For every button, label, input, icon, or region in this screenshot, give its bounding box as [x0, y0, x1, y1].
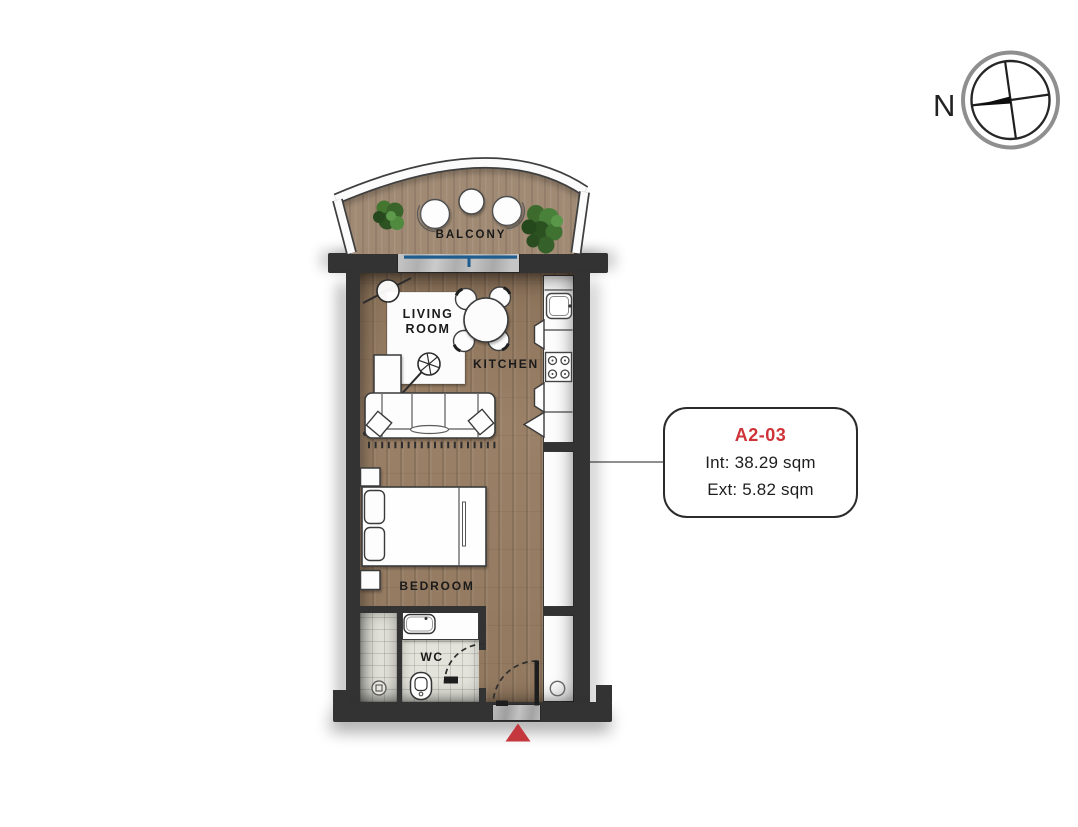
unit-info-card: A2-03 Int: 38.29 sqm Ext: 5.82 sqm: [663, 407, 858, 518]
interior-area: Int: 38.29 sqm: [705, 453, 816, 473]
compass-rose-icon: [955, 45, 1067, 157]
balcony-table: [459, 189, 484, 214]
balcony-label: BALCONY: [419, 229, 523, 241]
living-room-label: LIVING ROOM: [388, 307, 468, 337]
compass-north-label: N: [933, 88, 955, 124]
balcony-layer: [0, 0, 1078, 827]
bedroom-label: BEDROOM: [387, 579, 487, 593]
exterior-area: Ext: 5.82 sqm: [707, 480, 814, 500]
wc-label: WC: [407, 650, 457, 664]
unit-id: A2-03: [735, 425, 787, 446]
kitchen-label: KITCHEN: [456, 357, 556, 371]
floorplan-page: BALCONY LIVING ROOM KITCHEN BEDROOM WC A…: [0, 0, 1078, 827]
